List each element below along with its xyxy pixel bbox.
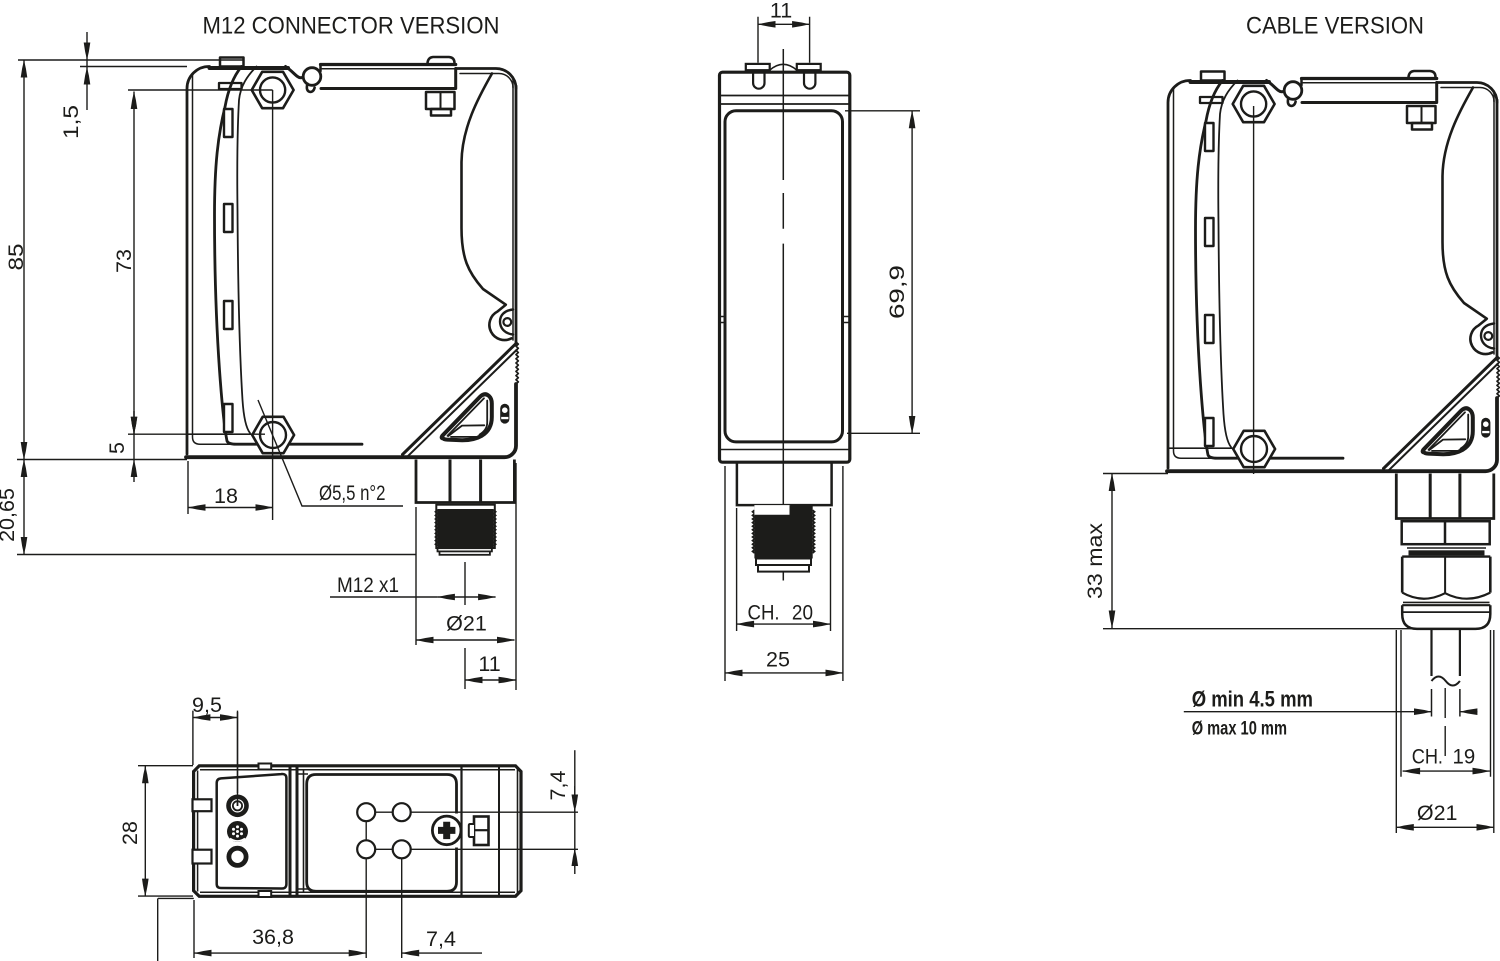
svg-text:Ø5,5 n°2: Ø5,5 n°2 xyxy=(319,481,386,505)
svg-text:7,4: 7,4 xyxy=(426,927,456,951)
svg-text:M12 x1: M12 x1 xyxy=(337,573,399,597)
svg-text:1,5: 1,5 xyxy=(59,105,83,139)
svg-text:M12 CONNECTOR VERSION: M12 CONNECTOR VERSION xyxy=(203,13,500,40)
svg-text:11: 11 xyxy=(478,652,500,676)
svg-text:69,9: 69,9 xyxy=(885,265,909,319)
svg-text:20,65: 20,65 xyxy=(0,488,19,542)
svg-text:33 max: 33 max xyxy=(1083,523,1107,599)
svg-text:CABLE VERSION: CABLE VERSION xyxy=(1246,13,1424,40)
svg-text:CH.: CH. xyxy=(748,601,780,625)
svg-text:5: 5 xyxy=(105,442,129,454)
svg-text:7,4: 7,4 xyxy=(546,771,570,801)
svg-text:Ø max 10 mm: Ø max 10 mm xyxy=(1192,719,1287,740)
svg-text:36,8: 36,8 xyxy=(252,925,294,949)
svg-text:18: 18 xyxy=(214,484,238,508)
svg-text:73: 73 xyxy=(112,249,136,273)
svg-text:11: 11 xyxy=(770,0,792,23)
svg-text:85: 85 xyxy=(4,243,28,270)
svg-text:Ø21: Ø21 xyxy=(446,612,487,636)
svg-text:28: 28 xyxy=(118,821,142,845)
svg-text:CH.: CH. xyxy=(1412,745,1443,769)
svg-text:Ø21: Ø21 xyxy=(1417,801,1458,825)
svg-text:25: 25 xyxy=(766,647,790,671)
svg-text:9,5: 9,5 xyxy=(192,693,222,717)
svg-text:20: 20 xyxy=(792,601,813,625)
svg-text:19: 19 xyxy=(1453,745,1476,769)
svg-text:Ø min 4.5 mm: Ø min 4.5 mm xyxy=(1192,687,1313,712)
